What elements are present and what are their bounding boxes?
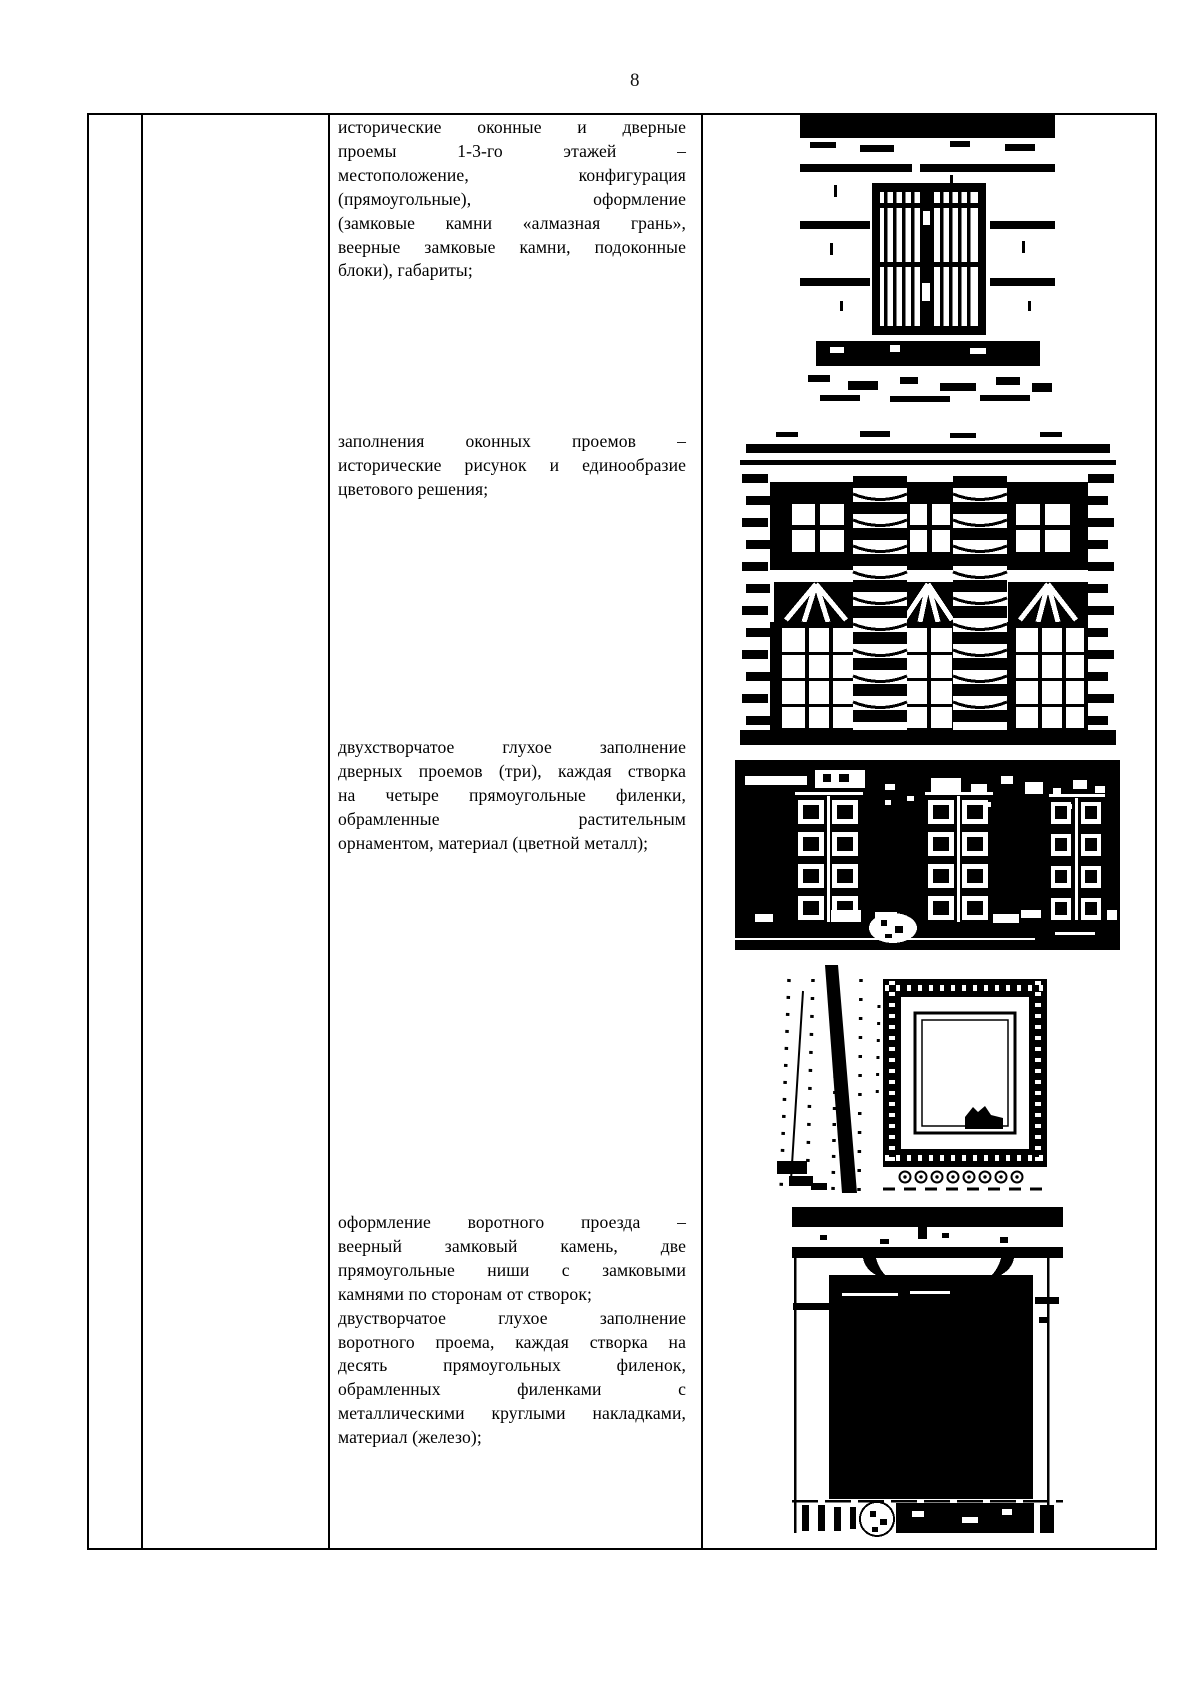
photo-window-grille — [800, 115, 1055, 403]
text-block-window-fillings: заполнения оконных проемов – исторически… — [338, 430, 686, 502]
photo-paneled-doors-image — [735, 760, 1120, 950]
text-line: блоки), габариты; — [338, 259, 686, 283]
photo-ornate-window — [777, 965, 1050, 1193]
photo-ornate-window-image — [777, 965, 1050, 1193]
text-line: двустворчатое глухое заполнение — [338, 1307, 686, 1331]
photo-facade-columns-image — [740, 430, 1116, 745]
text-line: веерный замковый камень, две — [338, 1235, 686, 1259]
text-line: прямоугольные ниши с замковыми — [338, 1259, 686, 1283]
text-line: обрамленных филенками с — [338, 1378, 686, 1402]
text-line: воротного проема, каждая створка на — [338, 1331, 686, 1355]
text-line: (замковые камни «алмазная грань», — [338, 212, 686, 236]
text-line: материал (железо); — [338, 1426, 686, 1450]
text-line: дверных проемов (три), каждая створка — [338, 760, 686, 784]
text-line: обрамленные растительным — [338, 808, 686, 832]
text-line: десять прямоугольных филенок, — [338, 1354, 686, 1378]
text-line: проемы 1-3-го этажей – — [338, 140, 686, 164]
photo-gate-passage — [792, 1207, 1063, 1537]
text-block-gate-passage: оформление воротного проезда – веерный з… — [338, 1211, 686, 1450]
page-number: 8 — [630, 70, 640, 92]
text-block-door-fillings: двухстворчатое глухое заполнение дверных… — [338, 736, 686, 856]
text-line: заполнения оконных проемов – — [338, 430, 686, 454]
column-divider-2 — [328, 113, 330, 1550]
text-line: (прямоугольные), оформление — [338, 188, 686, 212]
document-page: 8 исторические оконные и дверные проемы … — [0, 0, 1200, 1697]
text-line: местоположение, конфигурация — [338, 164, 686, 188]
text-line: на четыре прямоугольные филенки, — [338, 784, 686, 808]
column-divider-3 — [701, 113, 703, 1550]
text-line: металлическими круглыми накладками, — [338, 1402, 686, 1426]
text-line: исторические оконные и дверные — [338, 116, 686, 140]
text-line: цветового решения; — [338, 478, 686, 502]
text-line: исторические рисунок и единообразие — [338, 454, 686, 478]
photo-paneled-doors — [735, 760, 1120, 950]
text-line: оформление воротного проезда – — [338, 1211, 686, 1235]
photo-gate-passage-image — [792, 1207, 1063, 1537]
text-line: веерные замковые камни, подоконные — [338, 236, 686, 260]
text-line: орнаментом, материал (цветной металл); — [338, 832, 686, 856]
column-divider-1 — [141, 113, 143, 1550]
text-line: камнями по сторонам от створок; — [338, 1283, 686, 1307]
text-line: двухстворчатое глухое заполнение — [338, 736, 686, 760]
text-block-window-door-openings: исторические оконные и дверные проемы 1-… — [338, 116, 686, 283]
photo-facade-columns — [740, 430, 1116, 745]
photo-window-grille-image — [800, 115, 1055, 403]
